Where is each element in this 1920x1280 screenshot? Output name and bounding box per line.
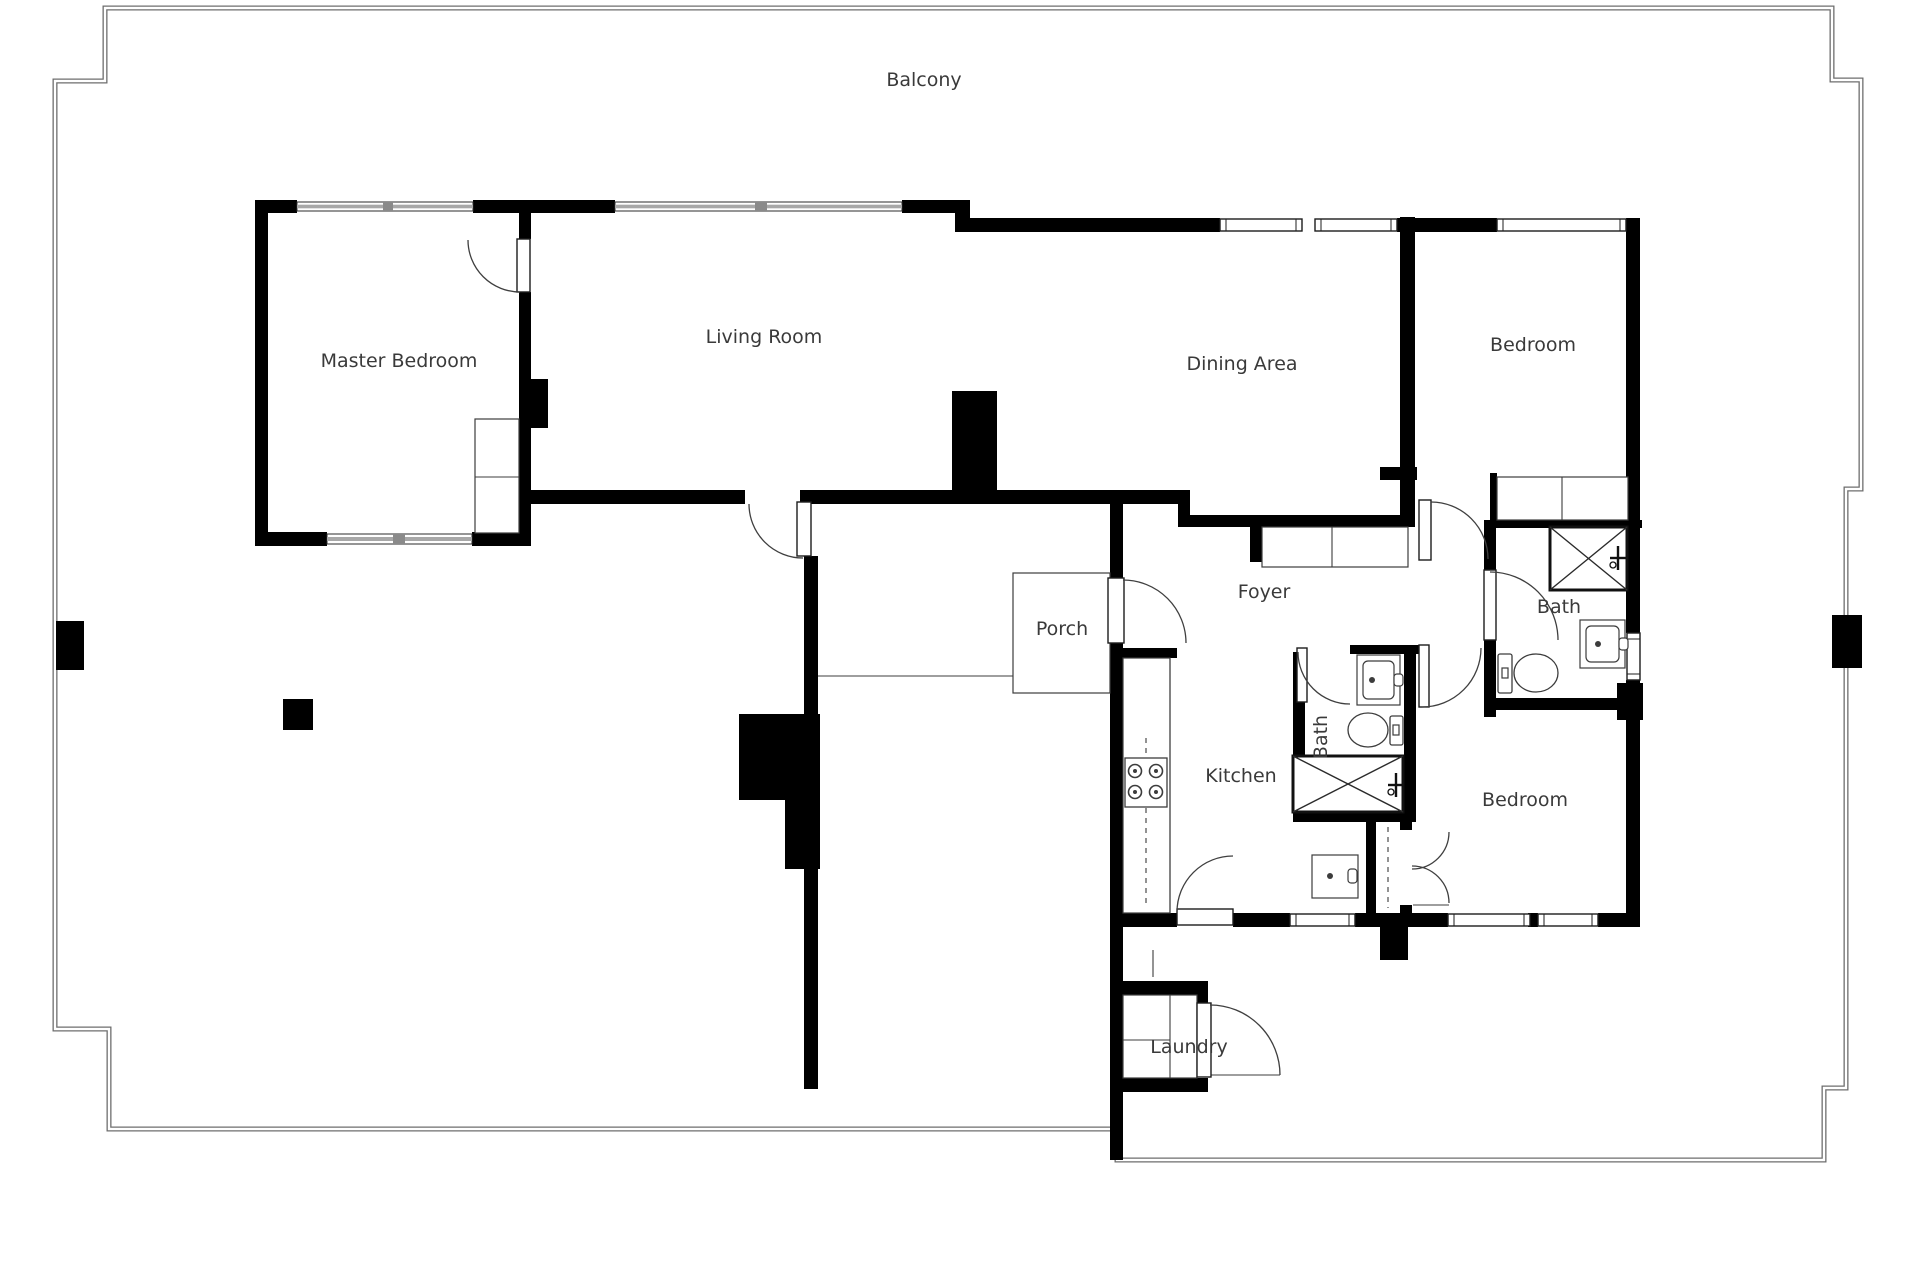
label-bedroom-top: Bedroom <box>1490 334 1576 356</box>
wall-segment <box>804 869 818 1089</box>
column-block <box>56 621 84 670</box>
wall-segment <box>519 428 531 533</box>
wall-segment <box>1366 822 1376 913</box>
wall-segment <box>1626 680 1640 927</box>
window-mullion <box>393 534 405 544</box>
label-bath-top-right: Bath <box>1537 596 1581 618</box>
wall-segment <box>473 200 615 213</box>
label-porch: Porch <box>1036 618 1088 640</box>
door-leaf <box>797 502 811 556</box>
sink-faucet <box>1619 638 1628 650</box>
wall-segment <box>519 200 531 239</box>
door-leaf <box>1177 909 1233 925</box>
sink-faucet <box>1394 674 1403 686</box>
stove-burner-center <box>1154 769 1158 773</box>
stove-burner-center <box>1133 769 1137 773</box>
window-frame <box>1448 914 1530 926</box>
toilet-bowl <box>1514 654 1558 692</box>
toilet-flush-button <box>1393 725 1399 735</box>
floor-plan-svg: BalconyMaster BedroomLiving RoomDining A… <box>0 0 1920 1280</box>
sink-basin <box>1586 626 1619 662</box>
label-kitchen: Kitchen <box>1205 765 1276 787</box>
wall-segment <box>970 218 1220 232</box>
wall-segment <box>519 292 531 379</box>
window-frame <box>1315 219 1397 231</box>
wall-segment <box>1123 648 1177 658</box>
sink-drain <box>1595 641 1601 647</box>
stove-burner-center <box>1154 790 1158 794</box>
floor-plan-page: BalconyMaster BedroomLiving RoomDining A… <box>0 0 1920 1280</box>
wall-segment <box>1110 504 1123 578</box>
window-frame <box>1220 219 1302 231</box>
label-balcony: Balcony <box>886 69 961 91</box>
column-block <box>283 699 313 730</box>
door-leaf <box>517 239 530 292</box>
sink-faucet <box>1348 869 1357 883</box>
wall-segment <box>255 532 327 546</box>
master-closet <box>475 419 519 533</box>
wall-segment <box>804 556 818 714</box>
sink-drain <box>1327 873 1333 879</box>
wall-segment <box>472 532 531 546</box>
window-frame <box>1497 219 1626 231</box>
wall-segment <box>739 714 820 800</box>
wall-segment <box>1484 528 1496 570</box>
wall-segment <box>1120 1078 1208 1092</box>
wall-segment <box>1123 913 1177 927</box>
toilet-flush-button <box>1502 668 1508 678</box>
window-mullion <box>383 202 393 211</box>
column-block <box>1832 615 1862 668</box>
label-bath-middle: Bath <box>1310 715 1332 759</box>
label-living-room: Living Room <box>706 326 823 348</box>
wall-segment <box>519 379 548 428</box>
toilet-bowl <box>1348 713 1388 747</box>
label-foyer: Foyer <box>1238 581 1291 603</box>
stove-burner-center <box>1133 790 1137 794</box>
wall-segment <box>952 391 997 490</box>
door-leaf <box>1108 578 1124 643</box>
label-bedroom-bottom: Bedroom <box>1482 789 1568 811</box>
label-dining-area: Dining Area <box>1186 353 1297 375</box>
wall-segment <box>1178 515 1415 527</box>
window-frame <box>1627 633 1640 680</box>
wall-segment <box>519 490 745 504</box>
wall-segment <box>1400 905 1412 927</box>
wall-segment <box>1408 913 1448 927</box>
wall-segment <box>1233 913 1290 927</box>
sink-drain <box>1369 677 1375 683</box>
label-master-bedroom: Master Bedroom <box>321 350 478 372</box>
label-laundry: Laundry <box>1150 1036 1227 1058</box>
door-leaf <box>1484 570 1496 640</box>
wall-segment <box>1400 822 1412 830</box>
wall-segment <box>1120 981 1208 995</box>
wall-segment <box>1250 527 1262 562</box>
window-frame <box>1290 914 1355 926</box>
wall-segment <box>1380 467 1417 480</box>
foyer-closet <box>1262 527 1408 567</box>
door-leaf <box>1419 645 1429 707</box>
wall-segment <box>955 200 970 232</box>
stove-group <box>1125 758 1167 807</box>
sink-basin <box>1363 661 1394 699</box>
window-mullion <box>755 202 767 211</box>
wall-segment <box>255 200 268 546</box>
door-leaf <box>1419 500 1431 560</box>
wall-segment <box>785 800 820 869</box>
wall-segment <box>800 490 1190 504</box>
wall-segment <box>1490 473 1497 527</box>
window-frame <box>1538 914 1598 926</box>
wall-segment <box>1404 645 1416 822</box>
wall-segment <box>1380 927 1408 960</box>
